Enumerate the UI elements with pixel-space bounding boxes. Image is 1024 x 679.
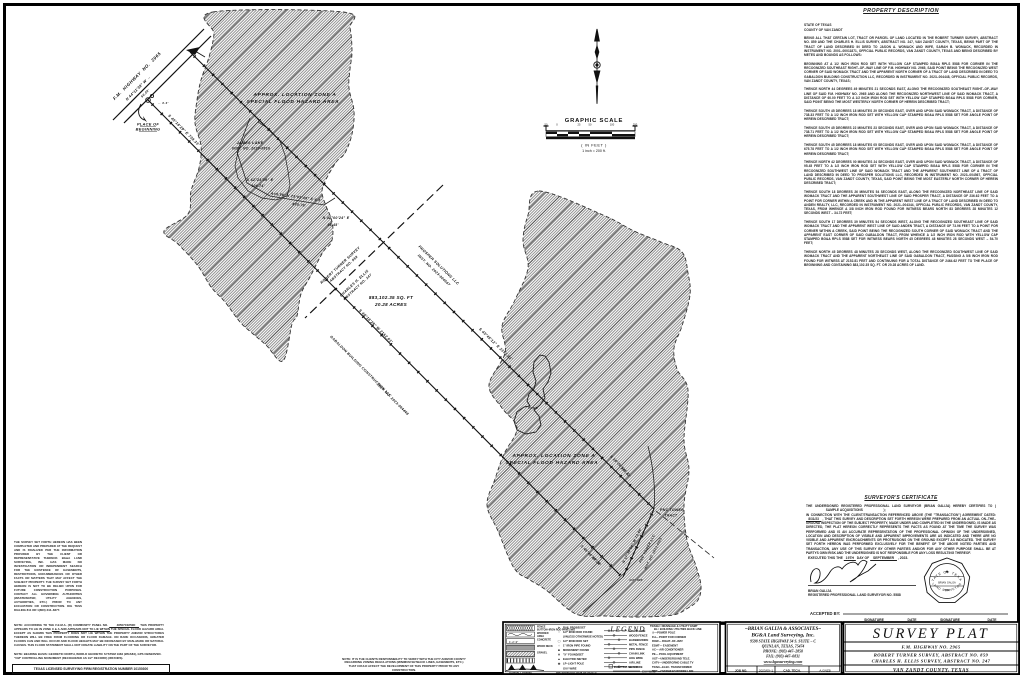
svg-text:95.45': 95.45'	[327, 223, 338, 227]
svg-text:SPECIAL FLOOD HAZARD AREA: SPECIAL FLOOD HAZARD AREA	[506, 460, 599, 466]
svg-text:POND: POND	[528, 406, 538, 410]
svg-text:SURVEY PLAT: SURVEY PLAT	[873, 626, 990, 642]
svg-text:2023/09–1: 2023/09–1	[759, 669, 774, 673]
svg-text:UGT—UNDERGROUND TELE.: UGT—UNDERGROUND TELE.	[652, 656, 690, 660]
svg-text:LP–LIGHT POLE: LP–LIGHT POLE	[563, 662, 584, 666]
svg-text:(UNLESS OTHERWISE NOTED): (UNLESS OTHERWISE NOTED)	[563, 634, 603, 638]
svg-text:ROBERT TURNER SURVEY, ABSTRACT: ROBERT TURNER SURVEY, ABSTRACT NO. 859	[874, 653, 989, 658]
svg-text:S 62°23'39" E: S 62°23'39" E	[247, 178, 274, 182]
svg-text:ESMT— EASEMENT: ESMT— EASEMENT	[652, 643, 678, 647]
svg-text:VAN ZANDT COUNTY, TEXAS: VAN ZANDT COUNTY, TEXAS	[893, 669, 969, 674]
svg-text:CHARLES H. ELLIS: CHARLES H. ELLIS	[339, 269, 370, 298]
svg-text:TRAN—ELEC. TRANSFORMER: TRAN—ELEC. TRANSFORMER	[652, 665, 692, 669]
svg-text:200: 200	[633, 123, 638, 127]
svg-text:FAX: (903) 447–0831: FAX: (903) 447–0831	[766, 655, 800, 659]
svg-text:ROW— RIGHT–OF–WAY: ROW— RIGHT–OF–WAY	[652, 639, 683, 643]
svg-text:PNC TOWER: PNC TOWER	[660, 508, 684, 512]
svg-text:AC— AIR CONDITIONER: AC— AIR CONDITIONER	[652, 648, 683, 652]
svg-text:AREA: AREA	[537, 635, 544, 638]
svg-text:RAIL PROBE/SET: RAIL PROBE/SET	[563, 625, 586, 629]
svg-text:INST. NO. 2020-0816: INST. NO. 2020-0816	[232, 147, 270, 151]
svg-text:GUY WIRE: GUY WIRE	[642, 670, 656, 674]
svg-text:"X" FOUND/SET: "X" FOUND/SET	[563, 653, 584, 657]
svg-text:20.28 ACRES: 20.28 ACRES	[374, 302, 408, 307]
svg-text:www.bgasurveying.com: www.bgasurveying.com	[764, 659, 803, 664]
svg-text:APPROX. LOCATION ZONE A: APPROX. LOCATION ZONE A	[512, 453, 596, 459]
svg-text:AIR LINE: AIR LINE	[629, 660, 641, 664]
svg-text:A.GNZB: A.GNZB	[819, 669, 830, 673]
svg-text:F.M. HIGHWAY NO. 2965: F.M. HIGHWAY NO. 2965	[112, 51, 162, 101]
svg-text:MONUMENT FOUND: MONUMENT FOUND	[563, 648, 589, 652]
svg-text:▢: ▢	[558, 639, 561, 643]
svg-text:← 0.4': ← 0.4'	[158, 101, 169, 105]
svg-text:S 45°18'29" W 2152.81': S 45°18'29" W 2152.81'	[358, 309, 394, 345]
svg-text:ELECTRIC METER: ELECTRIC METER	[614, 665, 638, 669]
svg-text:BRIAN GALIJA: BRIAN GALIJA	[938, 581, 956, 585]
svg-text:1/2" IRF: 1/2" IRF	[629, 578, 643, 582]
svg-text:○: ○	[558, 644, 560, 648]
svg-text:HOG WIRE: HOG WIRE	[629, 656, 643, 660]
svg-text:GRAPHIC SCALE: GRAPHIC SCALE	[565, 118, 623, 124]
svg-text:60.00': 60.00'	[140, 88, 150, 98]
svg-text:( IN FEET ): ( IN FEET )	[581, 143, 607, 148]
svg-text:BG&A Land Surveying, Inc.: BG&A Land Surveying, Inc.	[750, 633, 814, 639]
svg-text:INST. NO. 2023-004448: INST. NO. 2023-004448	[376, 382, 410, 416]
svg-text:883,102.35 SQ. FT: 883,102.35 SQ. FT	[369, 295, 414, 300]
svg-text:CAD. TECH.: CAD. TECH.	[783, 669, 800, 673]
svg-text:100: 100	[610, 123, 615, 127]
svg-text:▲: ▲	[558, 657, 561, 661]
svg-text:1 inch = 200 ft.: 1 inch = 200 ft.	[582, 149, 606, 153]
svg-text:CATV—UNDERGRND CABLE TV: CATV—UNDERGRND CABLE TV	[652, 661, 694, 665]
svg-text:PROSPER SOLUTIONS LLC: PROSPER SOLUTIONS LLC	[418, 245, 460, 286]
svg-text:QUINLAN, TEXAS, 75474: QUINLAN, TEXAS, 75474	[762, 645, 805, 649]
svg-text:JOB NO.: JOB NO.	[735, 669, 748, 673]
svg-text:F.M. HIGHWAY NO. 2965: F.M. HIGHWAY NO. 2965	[901, 645, 960, 650]
svg-text:◉: ◉	[558, 662, 561, 666]
svg-text:BL= BUILDING UTILITIES BACK LI: BL= BUILDING UTILITIES BACK LINE	[654, 627, 702, 631]
svg-text:CHAIN LINK: CHAIN LINK	[629, 651, 645, 655]
svg-text:ELECTRIC METER: ELECTRIC METER	[563, 657, 587, 661]
svg-text:9598 STATE HIGHWAY 34 S. SUITE: 9598 STATE HIGHWAY 34 S. SUITE – C	[750, 640, 816, 644]
svg-text:1'-2'-3": 1'-2'-3"	[509, 640, 518, 644]
svg-text:PHONE: (903) 447–2858: PHONE: (903) 447–2858	[763, 650, 803, 654]
svg-text:~BRIAN GALIJA & ASSOCIATES~: ~BRIAN GALIJA & ASSOCIATES~	[745, 627, 821, 632]
svg-text:CHARLES H. ELLIS SURVEY, ABSTR: CHARLES H. ELLIS SURVEY, ABSTRACT NO. 24…	[872, 659, 991, 664]
svg-text:METAL FENCE: METAL FENCE	[629, 642, 648, 646]
svg-text:GRAVEL: GRAVEL	[537, 652, 548, 655]
svg-text:○: ○	[558, 630, 560, 634]
svg-text:FH— POINT FOR CORNER: FH— POINT FOR CORNER	[652, 635, 686, 639]
svg-text:BARBED/WIRE: BARBED/WIRE	[629, 638, 648, 642]
svg-text:■: ■	[558, 648, 560, 652]
svg-text:N 42°00'24" E: N 42°00'24" E	[323, 216, 350, 220]
svg-text:TRACT: TRACT	[665, 514, 678, 518]
svg-text:PE— POOL EQUIPMENT: PE— POOL EQUIPMENT	[652, 652, 684, 656]
svg-text:106.74': 106.74'	[251, 184, 264, 188]
svg-text:SPECIAL FLOOD HAZARD AREA: SPECIAL FLOOD HAZARD AREA	[247, 99, 340, 105]
svg-text:CONCRETE: CONCRETE	[537, 639, 551, 642]
svg-text:GRASS LINE: GRASS LINE	[629, 629, 646, 633]
svg-text:BEGINNING: BEGINNING	[136, 127, 161, 132]
svg-text:JAMES LAKE: JAMES LAKE	[237, 141, 264, 145]
svg-text:WOOD DECK: WOOD DECK	[537, 645, 553, 648]
svg-text:OHT—OVERHEAD POWER LINE: OHT—OVERHEAD POWER LINE	[652, 669, 694, 673]
svg-text:WOOD FENCE: WOOD FENCE	[629, 633, 648, 637]
svg-text:1" IRON PIPE FOUND: 1" IRON PIPE FOUND	[563, 644, 590, 648]
svg-text:APPROX. LOCATION ZONE A: APPROX. LOCATION ZONE A	[253, 92, 337, 98]
svg-text:1/2" IRON ROD FOUND: 1/2" IRON ROD FOUND	[563, 630, 593, 634]
svg-text:1/2" IRON ROD SET: 1/2" IRON ROD SET	[563, 639, 589, 643]
svg-text:☉—POWER POLE: ☉—POWER POLE	[652, 631, 676, 635]
svg-text:GUY WIRE: GUY WIRE	[563, 666, 577, 670]
svg-text:WATER/WOOD SIGN OF POSTS: WATER/WOOD SIGN OF POSTS	[556, 670, 597, 674]
svg-text:ASPHALT PAVING: ASPHALT PAVING	[509, 670, 532, 674]
svg-text:PIPE FENCE: PIPE FENCE	[629, 647, 645, 651]
svg-text:0: 0	[556, 123, 558, 127]
